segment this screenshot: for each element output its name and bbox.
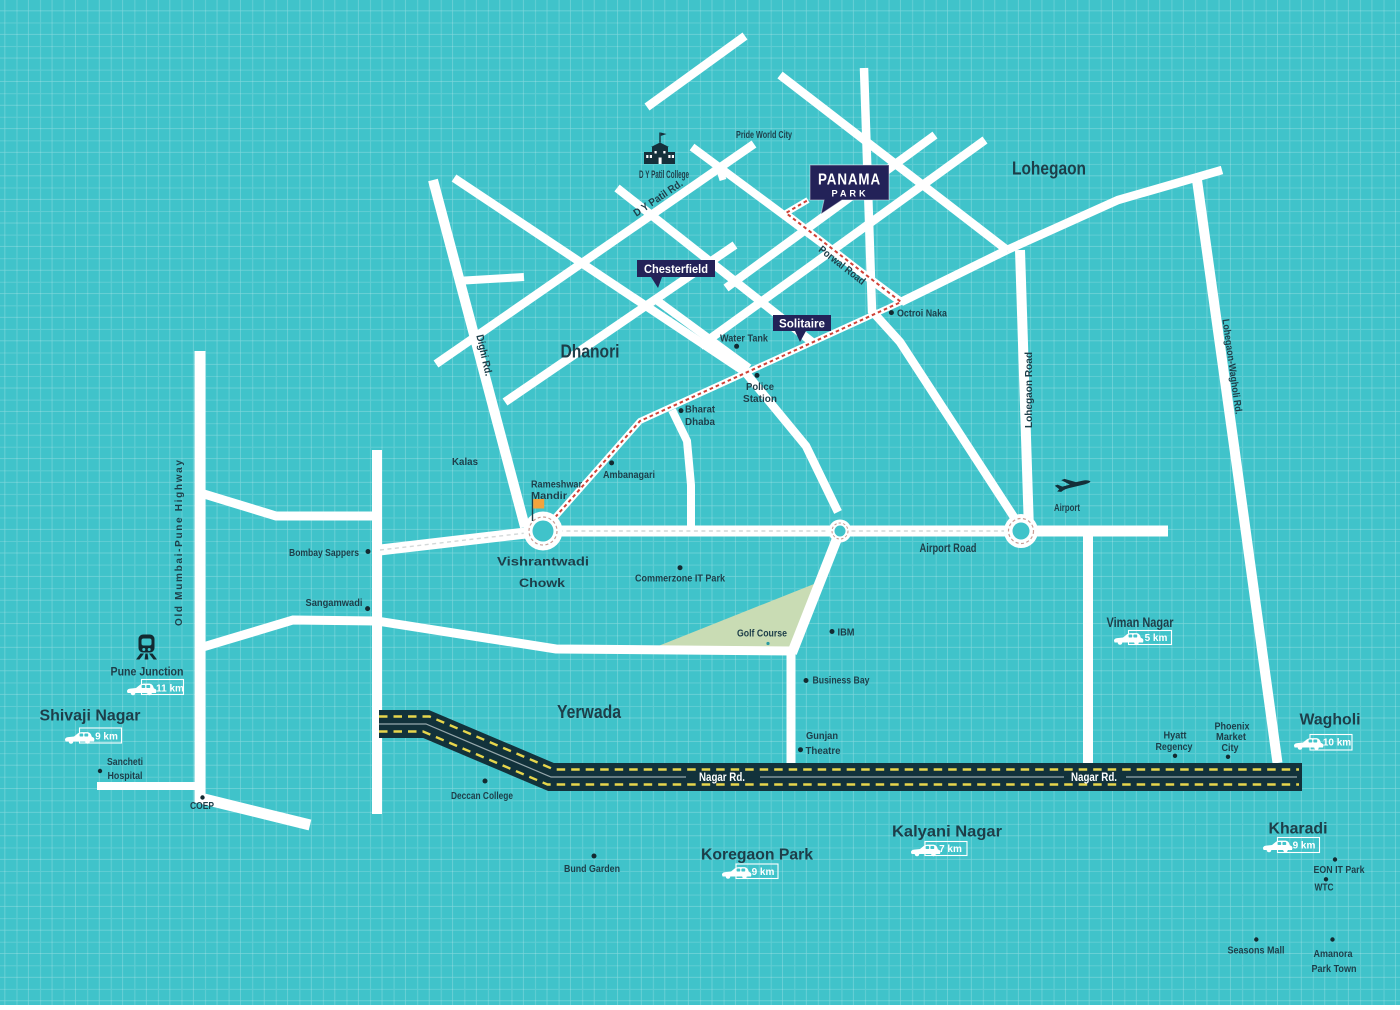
svg-text:Wagholi: Wagholi	[1300, 712, 1361, 729]
svg-text:Solitaire: Solitaire	[779, 317, 825, 331]
svg-text:Nagar Rd.: Nagar Rd.	[699, 772, 745, 784]
svg-text:7 km: 7 km	[939, 844, 962, 855]
svg-text:Amanora: Amanora	[1314, 948, 1353, 960]
svg-text:Lohegaon: Lohegaon	[1012, 159, 1086, 179]
svg-text:PANAMA: PANAMA	[818, 172, 881, 189]
svg-text:Rameshwar: Rameshwar	[531, 479, 582, 491]
svg-text:Sangamwadi: Sangamwadi	[306, 597, 363, 609]
svg-text:D Y Patil College: D Y Patil College	[639, 169, 689, 181]
svg-text:Hyatt: Hyatt	[1164, 730, 1187, 742]
svg-text:Nagar Rd.: Nagar Rd.	[1071, 772, 1117, 784]
svg-text:Station: Station	[743, 393, 777, 405]
svg-text:Deccan College: Deccan College	[451, 790, 513, 802]
svg-text:Vishrantwadi: Vishrantwadi	[497, 555, 589, 569]
svg-text:Bund Garden: Bund Garden	[564, 863, 620, 875]
svg-text:Chesterfield: Chesterfield	[644, 262, 708, 276]
svg-text:Kalas: Kalas	[452, 456, 478, 468]
svg-text:Airport Road: Airport Road	[920, 543, 977, 555]
svg-text:Shivaji Nagar: Shivaji Nagar	[40, 708, 141, 725]
svg-text:Theatre: Theatre	[806, 745, 841, 757]
svg-text:PARK: PARK	[832, 189, 869, 200]
svg-text:5 km: 5 km	[1145, 633, 1168, 644]
svg-text:COEP: COEP	[190, 800, 214, 812]
svg-text:Ambanagari: Ambanagari	[603, 469, 655, 481]
svg-text:Octroi Naka: Octroi Naka	[897, 308, 947, 320]
svg-text:Commerzone IT Park: Commerzone IT Park	[635, 573, 725, 585]
svg-text:9 km: 9 km	[95, 732, 118, 743]
svg-text:Pune Junction: Pune Junction	[111, 665, 184, 679]
svg-text:Viman Nagar: Viman Nagar	[1107, 614, 1174, 630]
svg-text:Regency: Regency	[1156, 741, 1193, 753]
svg-text:Hospital: Hospital	[108, 770, 143, 782]
svg-text:IBM: IBM	[838, 627, 855, 639]
svg-text:Sancheti: Sancheti	[107, 756, 143, 768]
svg-text:Water Tank: Water Tank	[720, 333, 768, 345]
svg-text:Yerwada: Yerwada	[557, 702, 622, 722]
svg-text:Golf Course: Golf Course	[737, 628, 787, 640]
svg-text:11 km: 11 km	[156, 684, 184, 695]
svg-text:10 km: 10 km	[1323, 738, 1351, 749]
svg-text:WTC: WTC	[1315, 882, 1334, 894]
svg-text:Bharat: Bharat	[685, 404, 715, 416]
svg-text:9 km: 9 km	[752, 867, 775, 878]
svg-text:9 km: 9 km	[1293, 841, 1316, 852]
svg-text:Gunjan: Gunjan	[806, 730, 838, 742]
svg-text:Bombay Sappers: Bombay Sappers	[289, 547, 359, 559]
svg-text:Dhanori: Dhanori	[561, 342, 620, 362]
svg-text:Koregaon Park: Koregaon Park	[701, 847, 813, 864]
svg-text:City: City	[1222, 742, 1239, 754]
svg-text:Lohegaon Road: Lohegaon Road	[1023, 352, 1035, 428]
svg-text:EON IT Park: EON IT Park	[1314, 864, 1365, 876]
svg-text:Dhaba: Dhaba	[685, 416, 715, 428]
svg-text:Park Town: Park Town	[1312, 963, 1357, 975]
svg-text:Pride World City: Pride World City	[736, 129, 792, 141]
svg-text:Kharadi: Kharadi	[1269, 821, 1328, 838]
svg-text:Airport: Airport	[1054, 503, 1081, 514]
svg-text:Seasons Mall: Seasons Mall	[1228, 945, 1285, 957]
svg-text:Police: Police	[746, 381, 774, 393]
svg-text:Chowk: Chowk	[519, 576, 565, 590]
svg-text:Kalyani Nagar: Kalyani Nagar	[892, 824, 1002, 841]
svg-text:Mandir: Mandir	[531, 490, 567, 502]
svg-text:Business Bay: Business Bay	[813, 675, 870, 687]
